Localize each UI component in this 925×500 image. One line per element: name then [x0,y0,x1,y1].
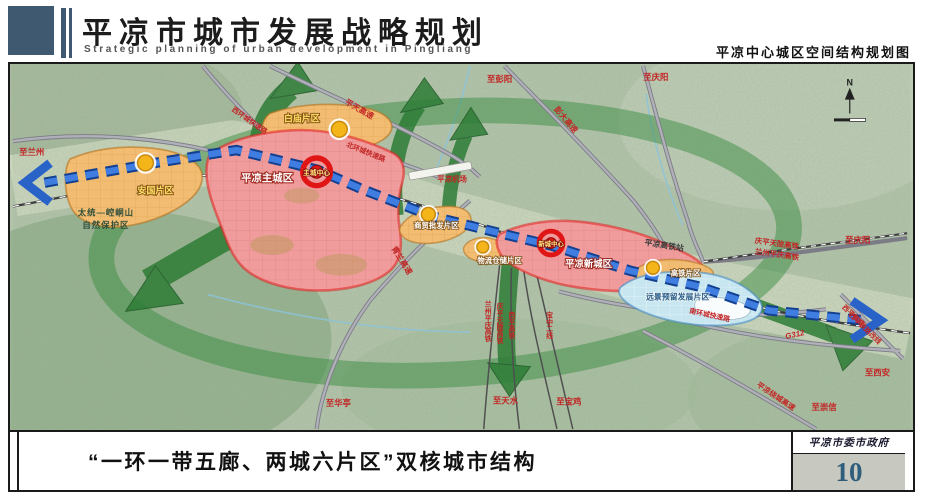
map-canvas: 安国片区 白庙片区 平凉主城区 主城中心 商贸批发片区 物流仓储片区 平凉新城区… [8,62,915,432]
airport-label: 平凉机场 [437,174,467,184]
dest-label-lanzhou: 至兰州 [19,147,44,157]
zone-label-reserve: 远景预留发展片区 [646,291,709,301]
node-anguo [135,152,157,174]
core-label-main-city: 主城中心 [303,168,330,177]
zone-label-cangchu: 物流仓储片区 [477,255,522,265]
nature-reserve-label-2: 自然保护区 [82,220,129,230]
node-baimiao [328,118,350,140]
dest-label-qingyang-right: 至庆阳 [845,235,870,245]
map-sheet-title: 平凉中心城区空间结构规划图 [716,42,911,61]
header-accent-bar-thin [69,8,72,58]
page-number: 10 [793,454,905,490]
zone-label-anguo: 安国片区 [138,185,174,196]
footer-caption: “一环一带五廊、两城六片区”双核城市结构 [88,446,537,476]
scale-bar [834,118,866,121]
dest-label-qingyang-top: 至庆阳 [643,72,668,82]
node-cangchu [474,239,491,256]
node-gaotie [644,259,662,277]
dest-label-pengyang: 至彭阳 [487,74,512,84]
header-logo-square [8,6,54,55]
header-accent-bar [61,8,66,58]
zone-label-main-city: 平凉主城区 [241,172,294,185]
dest-label-huating: 至华亭 [326,398,352,408]
footer-inner-rule [17,432,19,490]
agency-label: 平凉市委市政府 [793,432,905,454]
footer-strip: “一环一带五廊、两城六片区”双核城市结构 平凉市委市政府 10 [8,432,915,492]
compass-north-label: N [847,78,853,88]
zone-label-new-city: 平凉新城区 [565,258,613,269]
dest-label-tianshui: 至天水 [493,395,519,405]
zone-label-shangmao: 商贸批发片区 [414,220,459,230]
core-label-new-city: 新城中心 [538,239,564,248]
plan-map-svg: 安国片区 白庙片区 平凉主城区 主城中心 商贸批发片区 物流仓储片区 平凉新城区… [10,64,913,430]
zone-label-baimiao: 白庙片区 [284,112,320,123]
page-subtitle-en: Strategic planning of urban development … [84,44,473,55]
dest-label-chongxin: 至崇信 [811,402,837,412]
dest-label-baoji: 至宝鸡 [556,396,581,406]
dest-label-xian: 至西安 [865,368,891,378]
zone-label-gaotie: 高铁片区 [671,268,701,278]
nature-reserve-label-1: 太统—崆峒山 [77,207,134,217]
title-block: 平凉市委市政府 10 [791,432,905,490]
